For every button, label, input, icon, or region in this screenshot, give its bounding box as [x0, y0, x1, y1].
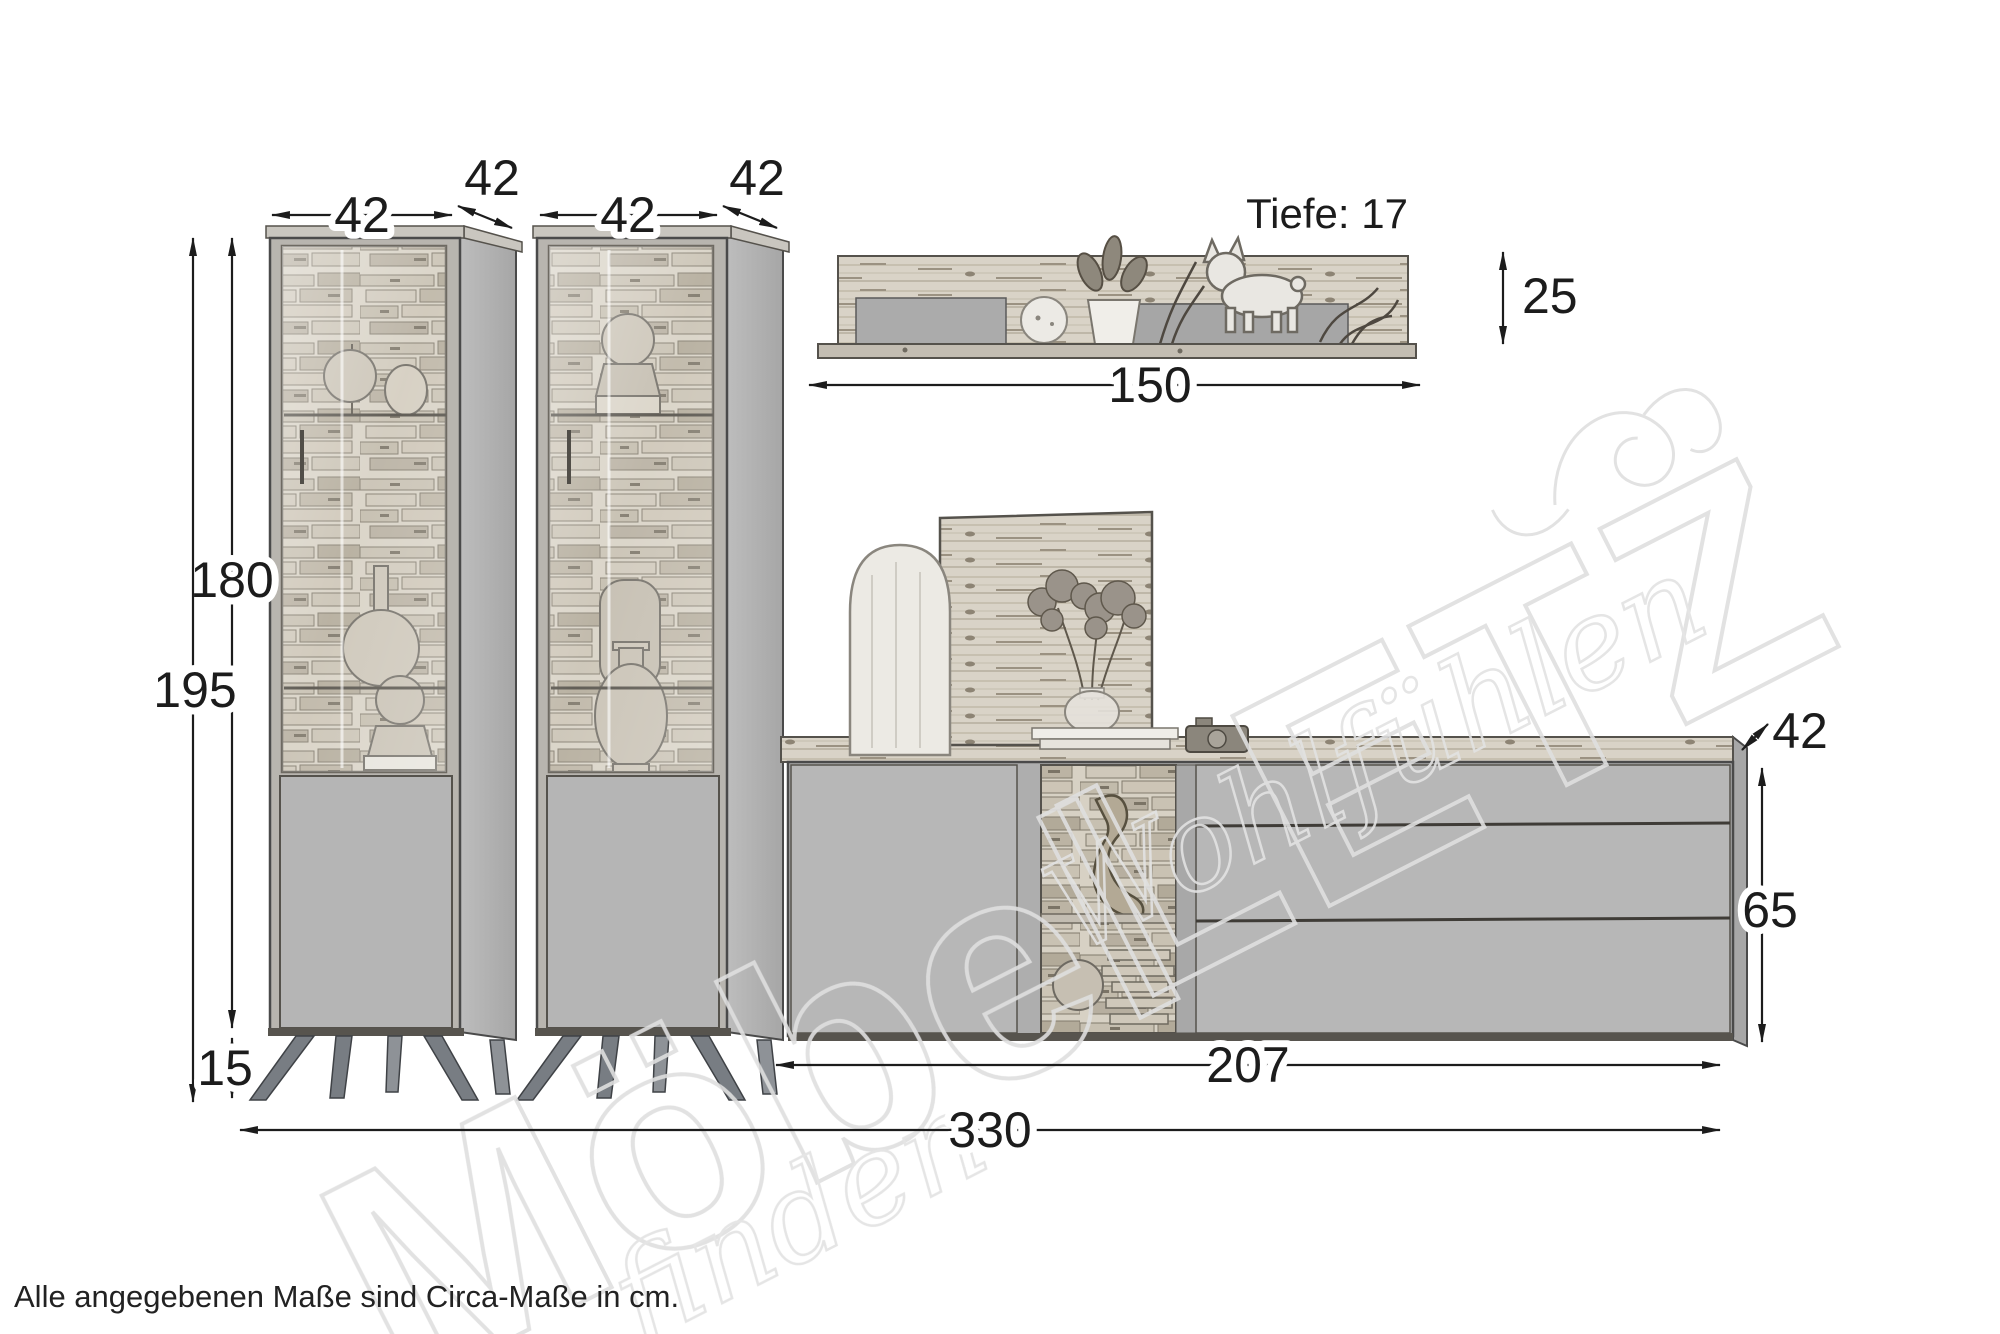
shelf-box-left	[856, 298, 1006, 344]
dim-cabinet1-width-label: 42	[334, 187, 390, 243]
wall-shelf	[818, 235, 1416, 358]
dim-cabinet1-depth-label: 42	[464, 150, 520, 206]
dim-cabinet2-depth-line	[723, 206, 777, 228]
vitrine-left-door	[280, 776, 452, 1028]
dim-shelf-depth-label: Tiefe: 17	[1246, 190, 1408, 237]
dim-shelf-height-label: 25	[1522, 268, 1578, 324]
footer-note: Alle angegebenen Maße sind Circa-Maße in…	[14, 1279, 679, 1314]
dim-sideboard-width-label: 207	[1206, 1037, 1289, 1093]
dome-lamp	[850, 545, 950, 755]
dim-total-height-label: 195	[153, 662, 236, 718]
dim-cabinet2-depth-label: 42	[729, 150, 785, 206]
dim-total-width-label: 330	[948, 1102, 1031, 1158]
vitrine-left	[250, 226, 522, 1100]
dim-cabinet2-width-label: 42	[600, 187, 656, 243]
dim-sideboard-height-label: 65	[1742, 882, 1798, 938]
dim-sideboard-depth-label: 42	[1772, 703, 1828, 759]
dim-cabinet1-depth-line	[458, 206, 512, 228]
furniture-dimension-diagram: Möbel LETZ finden Wohlfühlen 42 42 42 42…	[0, 0, 2000, 1334]
dim-feet-height-label: 15	[197, 1040, 253, 1096]
dim-cabinet-height-label: 180	[190, 552, 273, 608]
dim-shelf-width-label: 150	[1108, 357, 1191, 413]
